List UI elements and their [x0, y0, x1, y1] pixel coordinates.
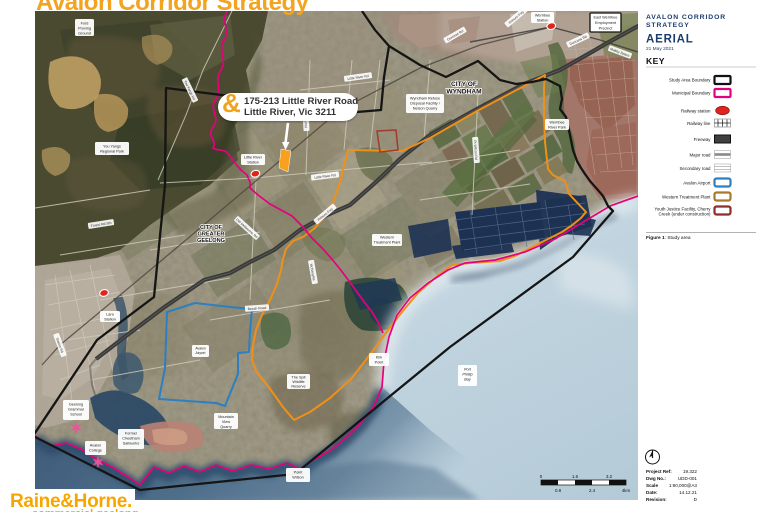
svg-text:Former: Former [125, 432, 138, 436]
svg-text:14.12.21: 14.12.21 [679, 490, 697, 495]
svg-text:GEELONG: GEELONG [197, 238, 225, 244]
svg-text:CITY OF: CITY OF [451, 81, 477, 88]
svg-text:CITY OF: CITY OF [200, 225, 223, 231]
svg-text:College: College [89, 449, 102, 453]
svg-text:Nelson Quarry: Nelson Quarry [413, 107, 438, 111]
svg-text:Port: Port [464, 368, 472, 372]
svg-text:Station: Station [247, 161, 259, 165]
svg-text:Western Treatment Plant: Western Treatment Plant [662, 195, 711, 200]
svg-text:Little River: Little River [244, 156, 263, 160]
svg-text:Wilson: Wilson [292, 476, 303, 480]
svg-text:GREATER: GREATER [198, 232, 225, 238]
svg-text:Project Ref:: Project Ref: [646, 469, 672, 474]
svg-text:Saltworks: Saltworks [123, 442, 140, 446]
svg-text:Station: Station [537, 19, 549, 23]
svg-text:AERIAL: AERIAL [646, 34, 694, 46]
svg-text:Avalon: Avalon [90, 444, 102, 448]
svg-text:Wildlife: Wildlife [292, 380, 304, 384]
svg-text:UDD-001: UDD-001 [678, 476, 698, 481]
svg-text:Railway station: Railway station [681, 109, 711, 114]
svg-text:Station: Station [104, 318, 116, 322]
svg-text:You Yangs: You Yangs [103, 145, 121, 149]
svg-text:Ford: Ford [81, 22, 89, 26]
svg-text:Precinct: Precinct [599, 27, 614, 31]
svg-text:Quarry: Quarry [220, 425, 232, 429]
svg-text:Lara: Lara [106, 313, 114, 317]
svg-text:Employment: Employment [595, 21, 617, 25]
svg-text:Phillip: Phillip [462, 373, 472, 377]
svg-text:Reserve: Reserve [291, 385, 305, 389]
svg-text:Date:: Date: [646, 490, 658, 495]
svg-text:2.4: 2.4 [589, 488, 596, 493]
svg-text:Scale: Scale [646, 483, 658, 488]
svg-text:Point: Point [294, 471, 304, 475]
svg-text:Revision:: Revision: [646, 497, 667, 502]
svg-text:Major road: Major road [690, 153, 712, 158]
svg-text:Cheetham: Cheetham [122, 437, 140, 441]
svg-text:AVALON CORRIDOR: AVALON CORRIDOR [646, 14, 726, 21]
svg-text:Municipal Boundary: Municipal Boundary [672, 91, 711, 96]
svg-text:Werribee: Werribee [535, 14, 550, 18]
svg-text:East Werribee: East Werribee [594, 16, 618, 20]
svg-text:Werribee: Werribee [549, 121, 564, 125]
svg-text:Western: Western [380, 236, 394, 240]
svg-text:19.322: 19.322 [683, 469, 697, 474]
svg-text:WYNDHAM: WYNDHAM [446, 89, 482, 96]
svg-text:KEY: KEY [646, 56, 665, 66]
svg-text:21 May 2021: 21 May 2021 [646, 46, 674, 52]
svg-text:Avalon: Avalon [195, 347, 205, 351]
svg-text:3.2: 3.2 [606, 474, 613, 479]
svg-text:STRATEGY: STRATEGY [646, 22, 690, 29]
svg-text:Proving: Proving [78, 27, 91, 31]
svg-text:Figure 1: Study area: Figure 1: Study area [646, 235, 691, 241]
svg-text:Grammar: Grammar [68, 408, 85, 412]
svg-text:Disposal Facility /: Disposal Facility / [410, 102, 440, 106]
svg-text:Secondary road: Secondary road [680, 166, 712, 171]
svg-text:4km: 4km [622, 488, 631, 493]
svg-text:Avalon Airport: Avalon Airport [683, 181, 711, 186]
svg-text:Bay: Bay [464, 378, 472, 382]
svg-text:Freeway: Freeway [694, 137, 712, 142]
svg-text:Treatment Plant: Treatment Plant [374, 241, 402, 245]
svg-text:1.6: 1.6 [572, 474, 579, 479]
svg-text:Mountain: Mountain [218, 415, 234, 419]
svg-text:D: D [694, 497, 698, 502]
svg-text:Railway line: Railway line [687, 121, 711, 126]
svg-text:1:90,000@A3: 1:90,000@A3 [669, 483, 698, 488]
svg-text:The Spit: The Spit [291, 376, 306, 380]
svg-text:Point: Point [375, 361, 385, 365]
svg-text:View: View [222, 420, 230, 424]
svg-text:0.8: 0.8 [555, 488, 562, 493]
svg-text:Kirk: Kirk [376, 356, 383, 360]
svg-text:Ground: Ground [78, 32, 91, 36]
svg-text:School: School [70, 413, 82, 417]
svg-text:Airport: Airport [196, 351, 206, 355]
svg-text:Creek (under construction): Creek (under construction) [659, 212, 712, 217]
svg-text:Geelong: Geelong [69, 403, 83, 407]
svg-text:Dwg No.:: Dwg No.: [646, 476, 666, 481]
svg-text:River Park: River Park [548, 126, 566, 130]
svg-text:Regional Park: Regional Park [100, 150, 124, 154]
svg-text:Wyndham Refuse: Wyndham Refuse [410, 97, 440, 101]
svg-text:Study Area Boundary: Study Area Boundary [669, 78, 711, 83]
